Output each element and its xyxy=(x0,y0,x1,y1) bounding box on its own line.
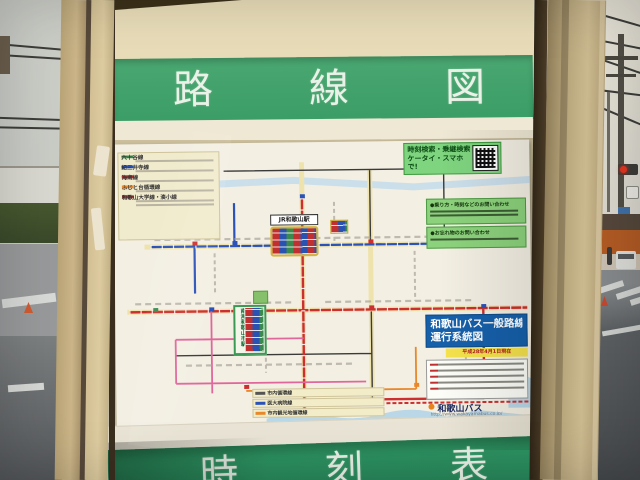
contact-box-title: ●お忘れ物のお問い合わせ xyxy=(430,229,522,237)
company-logo-icon xyxy=(428,404,434,410)
legend-detail-smudge xyxy=(136,203,214,206)
route-name: 六十谷線 xyxy=(121,154,143,158)
legend-row: 紀三井寺線 xyxy=(122,164,216,172)
legend-row: ふじと台循環線 xyxy=(122,184,216,192)
note-smudge xyxy=(430,381,524,384)
legend-row: 海南線 xyxy=(122,174,216,182)
route-name: 紀三井寺線 xyxy=(122,164,150,168)
note-smudge xyxy=(430,369,524,372)
pedestrian xyxy=(607,247,612,265)
pole-crossarm xyxy=(606,74,636,77)
panel-title-char: 図 xyxy=(445,67,485,107)
road-sign xyxy=(626,186,639,199)
route-legend-bottom: 市内循環線 医大病院線 市内観光地循環線 xyxy=(252,387,384,421)
map-title-box: 和歌山バス一般路線 運行系統図 xyxy=(425,314,527,348)
power-line xyxy=(0,117,62,122)
mobile-timetable-search-box: 時刻検索・乗継検索 ケータイ・スマホで! xyxy=(403,142,501,175)
phone-number-smudge xyxy=(430,210,518,213)
road-surface-dark xyxy=(0,336,62,480)
jr-station-route-badges xyxy=(270,226,318,257)
qr-box-line1: 時刻検索・乗継検索 xyxy=(407,145,470,155)
map-title-line1: 和歌山バス一般路線 xyxy=(430,318,522,332)
route-name: 市内観光地循環線 xyxy=(267,409,307,416)
route-map-header-panel: 路 線 図 xyxy=(113,55,534,123)
street-scene-left xyxy=(0,0,62,480)
shop-roof xyxy=(602,214,640,230)
road-surface xyxy=(0,243,62,339)
traffic-light xyxy=(618,164,638,175)
map-title-line2: 運行系統図 xyxy=(431,330,523,344)
route-color-swatch xyxy=(255,402,265,405)
route-name: 和歌山大学線・湊小線 xyxy=(122,194,177,198)
note-smudge xyxy=(430,387,524,390)
route-name: 医大病院線 xyxy=(267,399,292,406)
white-building xyxy=(0,166,62,206)
legend-row: 市内循環線 xyxy=(252,387,384,398)
legend-row: 六十谷線 xyxy=(121,154,215,162)
post-shadow-band xyxy=(554,0,569,480)
photo-bus-stop-route-map-board: 路 線 図 xyxy=(0,0,640,480)
contact-info-box: ●乗り方・時刻などのお問い合わせ xyxy=(426,198,526,225)
route-name: ふじと台循環線 xyxy=(122,184,161,188)
route-name: 海南線 xyxy=(122,174,139,178)
panel-title-char: 表 xyxy=(449,446,488,480)
utility-pole-far xyxy=(607,92,610,212)
route-color-swatch xyxy=(256,412,266,415)
legend-row: 医大病院線 xyxy=(252,397,384,408)
case-interior-top xyxy=(113,0,533,64)
nankai-wakayamashi-station-box: 南海和歌山市駅 xyxy=(233,305,267,355)
pole-crossarm xyxy=(604,56,638,60)
route-color-swatch xyxy=(255,392,265,395)
note-smudge xyxy=(430,363,524,366)
panel-title-char: 線 xyxy=(309,69,349,109)
panel-title-char: 刻 xyxy=(324,450,363,480)
van-window xyxy=(618,254,634,259)
qr-box-text: 時刻検索・乗継検索 ケータイ・スマホで! xyxy=(407,145,470,172)
panel-title-char: 路 xyxy=(173,70,213,110)
legend-row: 市内観光地循環線 xyxy=(252,407,384,418)
route-legend-top: 六十谷線 紀三井寺線 海南線 ふじと台循環線 和歌山大学線・湊小線 xyxy=(117,151,220,240)
note-smudge xyxy=(430,375,524,378)
green-hedge xyxy=(0,203,62,245)
bus-route-map-poster: 六十谷線 紀三井寺線 海南線 ふじと台循環線 和歌山大学線・湊小線 xyxy=(113,139,533,434)
route-badge-cluster xyxy=(330,220,348,234)
legend-row: 和歌山大学線・湊小線 xyxy=(122,194,216,206)
qr-code xyxy=(473,146,497,170)
red-signal-lamp xyxy=(620,166,627,173)
contact-info-box: ●お忘れ物のお問い合わせ xyxy=(426,226,526,249)
phone-number-smudge xyxy=(430,238,518,241)
castle-park-block xyxy=(253,291,268,304)
map-notes-box xyxy=(426,359,528,400)
jr-wakayama-station-label: JR和歌山駅 xyxy=(270,214,318,226)
qr-box-line2: ケータイ・スマホで! xyxy=(407,154,470,172)
contact-box-title: ●乗り方・時刻などのお問い合わせ xyxy=(430,201,522,209)
map-date-bar: 平成28年4月1日現在 xyxy=(446,348,528,358)
distant-structure xyxy=(0,36,10,74)
route-name: 市内循環線 xyxy=(267,389,292,396)
nankai-station-label: 南海和歌山市駅 xyxy=(236,308,245,352)
nankai-station-route-badges xyxy=(245,308,264,352)
white-van xyxy=(616,251,636,269)
phone-number-smudge xyxy=(430,214,518,217)
shadow-overlay xyxy=(107,437,268,480)
power-line xyxy=(0,126,62,130)
